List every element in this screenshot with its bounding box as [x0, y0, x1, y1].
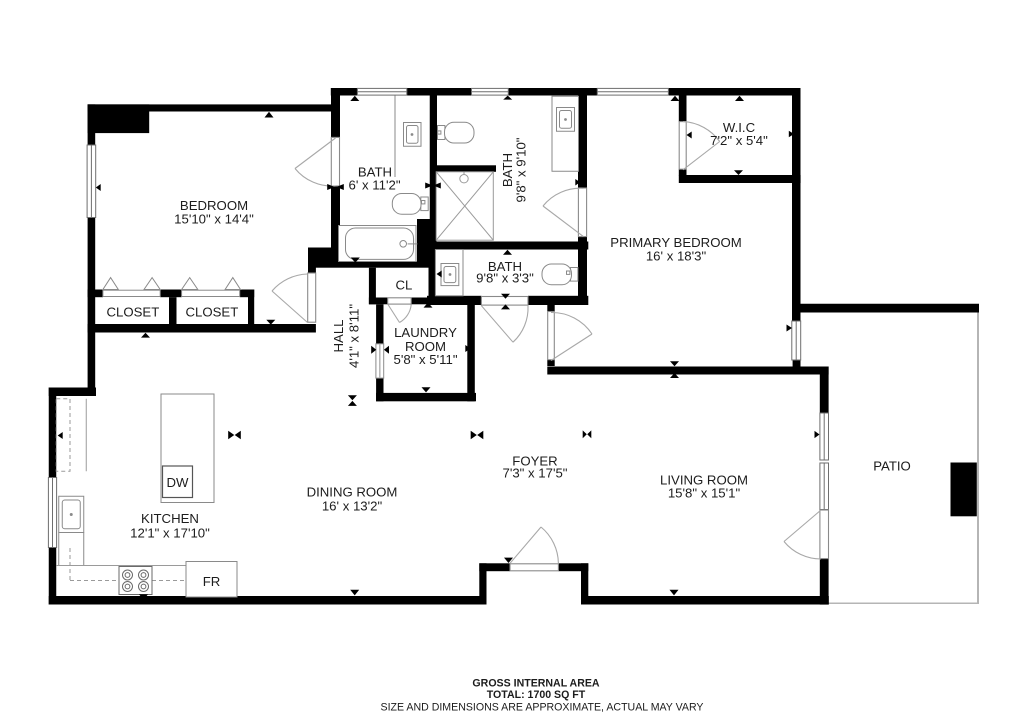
- svg-text:16' x 18'3": 16' x 18'3": [646, 249, 707, 264]
- svg-text:4'1" x 8'11": 4'1" x 8'11": [347, 304, 362, 368]
- svg-text:12'1" x 17'10": 12'1" x 17'10": [130, 526, 210, 541]
- svg-text:DINING ROOM: DINING ROOM: [307, 485, 398, 500]
- svg-text:6' x 11'2": 6' x 11'2": [349, 177, 401, 192]
- svg-text:15'10" x 14'4": 15'10" x 14'4": [174, 212, 254, 227]
- svg-text:CLOSET: CLOSET: [107, 305, 160, 320]
- svg-text:PATIO: PATIO: [873, 459, 911, 474]
- svg-text:LAUNDRY: LAUNDRY: [394, 325, 457, 340]
- svg-text:5'8" x 5'11": 5'8" x 5'11": [393, 352, 457, 367]
- svg-text:TOTAL: 1700 SQ FT: TOTAL: 1700 SQ FT: [487, 689, 586, 701]
- svg-text:DW: DW: [167, 475, 190, 490]
- svg-text:HALL: HALL: [331, 320, 346, 353]
- svg-text:16' x 13'2": 16' x 13'2": [322, 499, 383, 514]
- svg-text:7'3" x 17'5": 7'3" x 17'5": [503, 466, 568, 481]
- svg-text:7'2" x 5'4": 7'2" x 5'4": [710, 133, 768, 148]
- svg-text:CL: CL: [395, 278, 412, 293]
- svg-text:SIZE AND DIMENSIONS ARE APPROX: SIZE AND DIMENSIONS ARE APPROXIMATE, ACT…: [381, 702, 704, 714]
- svg-text:9'8" x 3'3": 9'8" x 3'3": [476, 271, 534, 286]
- svg-text:CLOSET: CLOSET: [186, 305, 239, 320]
- svg-text:FR: FR: [203, 574, 221, 589]
- svg-text:KITCHEN: KITCHEN: [141, 511, 199, 526]
- svg-text:9'8" x 9'10": 9'8" x 9'10": [514, 137, 529, 202]
- svg-text:GROSS INTERNAL AREA: GROSS INTERNAL AREA: [472, 678, 599, 690]
- svg-text:15'8" x 15'1": 15'8" x 15'1": [668, 486, 741, 501]
